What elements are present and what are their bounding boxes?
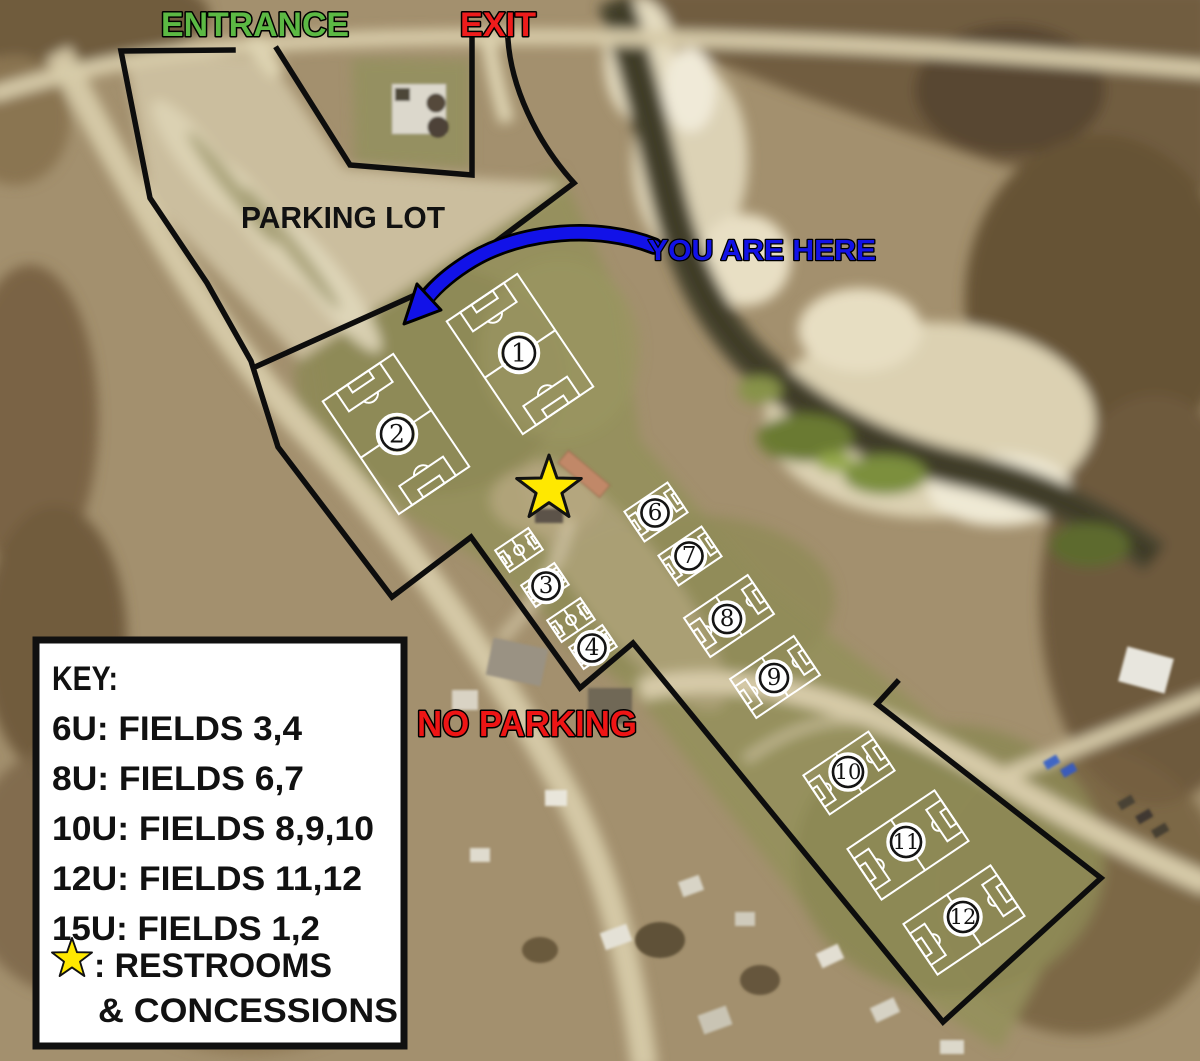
field-number-badge: 9 <box>757 661 791 695</box>
you-are-here-label: YOU ARE HERE <box>648 235 876 267</box>
field-number-badge: 10 <box>830 754 866 790</box>
field-number: 2 <box>389 420 405 449</box>
key-title: KEY: <box>52 660 118 698</box>
field-number-badge: 2 <box>378 415 417 454</box>
field-number: 9 <box>767 665 782 691</box>
field-number-badge: 3 <box>530 570 563 603</box>
field-number-badge: 7 <box>673 540 706 573</box>
key-line-8u: 8U: FIELDS 6,7 <box>52 760 304 798</box>
no-parking-label: NO PARKING <box>417 703 637 744</box>
field-number: 1 <box>511 339 527 368</box>
field-number: 11 <box>893 830 920 854</box>
key-line-6u: 6U: FIELDS 3,4 <box>52 710 302 748</box>
field-number: 3 <box>539 573 554 599</box>
site-map-canvas: 1 2 3 4 6 7 8 9 10 11 12 ENTRANCE EXIT P… <box>0 0 1200 1061</box>
storage-tank <box>428 117 448 137</box>
field-number: 10 <box>835 760 862 784</box>
field-number: 8 <box>720 606 735 632</box>
key-line-15u: 15U: FIELDS 1,2 <box>52 910 320 948</box>
field-number: 12 <box>950 905 977 929</box>
field-number-badge: 1 <box>500 334 539 373</box>
field-number-badge: 8 <box>710 602 744 636</box>
map-key: KEY: 6U: FIELDS 3,4 8U: FIELDS 6,7 10U: … <box>36 640 404 1046</box>
field-number-badge: 11 <box>888 824 924 860</box>
entrance-label: ENTRANCE <box>161 6 349 44</box>
soccer-complex-map: 1 2 3 4 6 7 8 9 10 11 12 ENTRANCE EXIT P… <box>0 0 1200 1061</box>
storage-tank <box>427 94 445 112</box>
field-number-badge: 4 <box>576 632 609 665</box>
key-line-10u: 10U: FIELDS 8,9,10 <box>52 810 374 848</box>
key-line-concessions: & CONCESSIONS <box>98 992 398 1030</box>
key-line-12u: 12U: FIELDS 11,12 <box>52 860 362 898</box>
exit-label: EXIT <box>460 6 536 44</box>
field-number: 7 <box>682 543 697 569</box>
key-line-restrooms: : RESTROOMS <box>94 947 332 985</box>
field-number: 6 <box>648 500 663 526</box>
field-number: 4 <box>585 635 600 661</box>
field-number-badge: 12 <box>945 899 981 935</box>
parking-lot-label: PARKING LOT <box>241 200 445 235</box>
field-number-badge: 6 <box>639 497 672 530</box>
